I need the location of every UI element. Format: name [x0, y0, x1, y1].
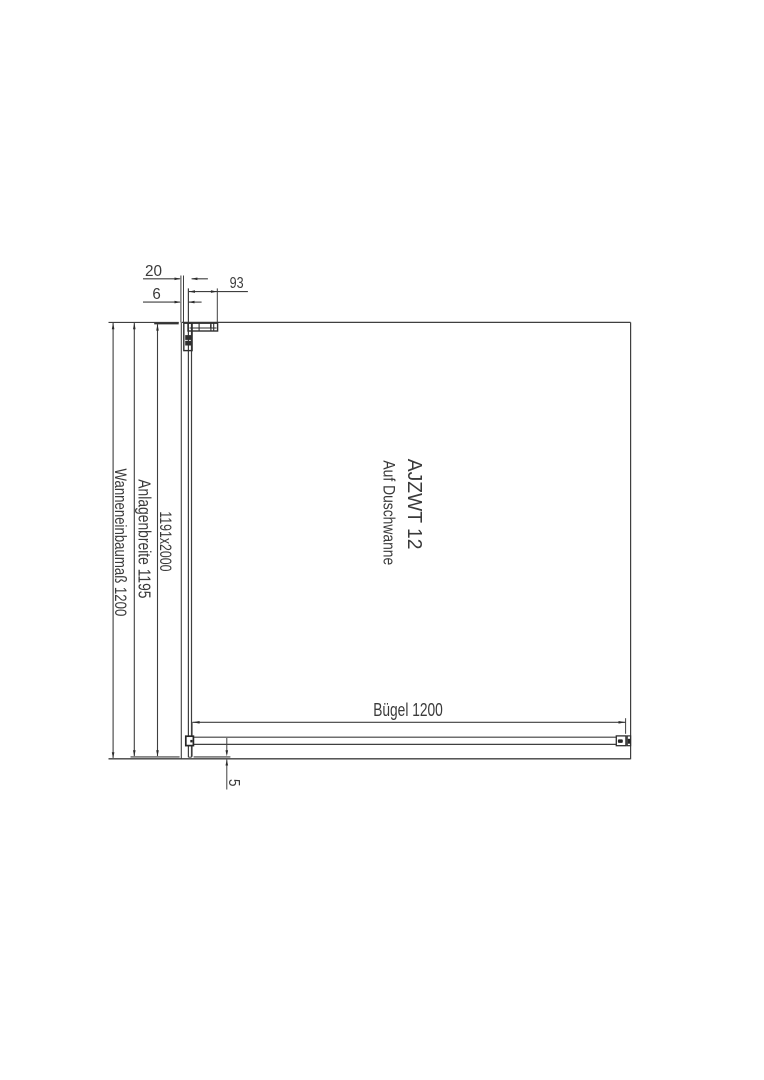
svg-text:Auf Duschwanne: Auf Duschwanne — [379, 460, 397, 565]
svg-text:6: 6 — [152, 286, 160, 303]
svg-text:Anlagenbreite 1195: Anlagenbreite 1195 — [134, 479, 154, 598]
svg-text:5: 5 — [225, 779, 242, 787]
svg-text:20: 20 — [145, 263, 162, 280]
svg-text:93: 93 — [230, 275, 244, 292]
svg-text:Wanneneinbaumaß 1200: Wanneneinbaumaß 1200 — [111, 469, 130, 617]
svg-text:Bügel 1200: Bügel 1200 — [373, 700, 443, 720]
svg-text:AJZWT 12: AJZWT 12 — [403, 459, 425, 550]
svg-text:1191x2000: 1191x2000 — [156, 511, 174, 571]
